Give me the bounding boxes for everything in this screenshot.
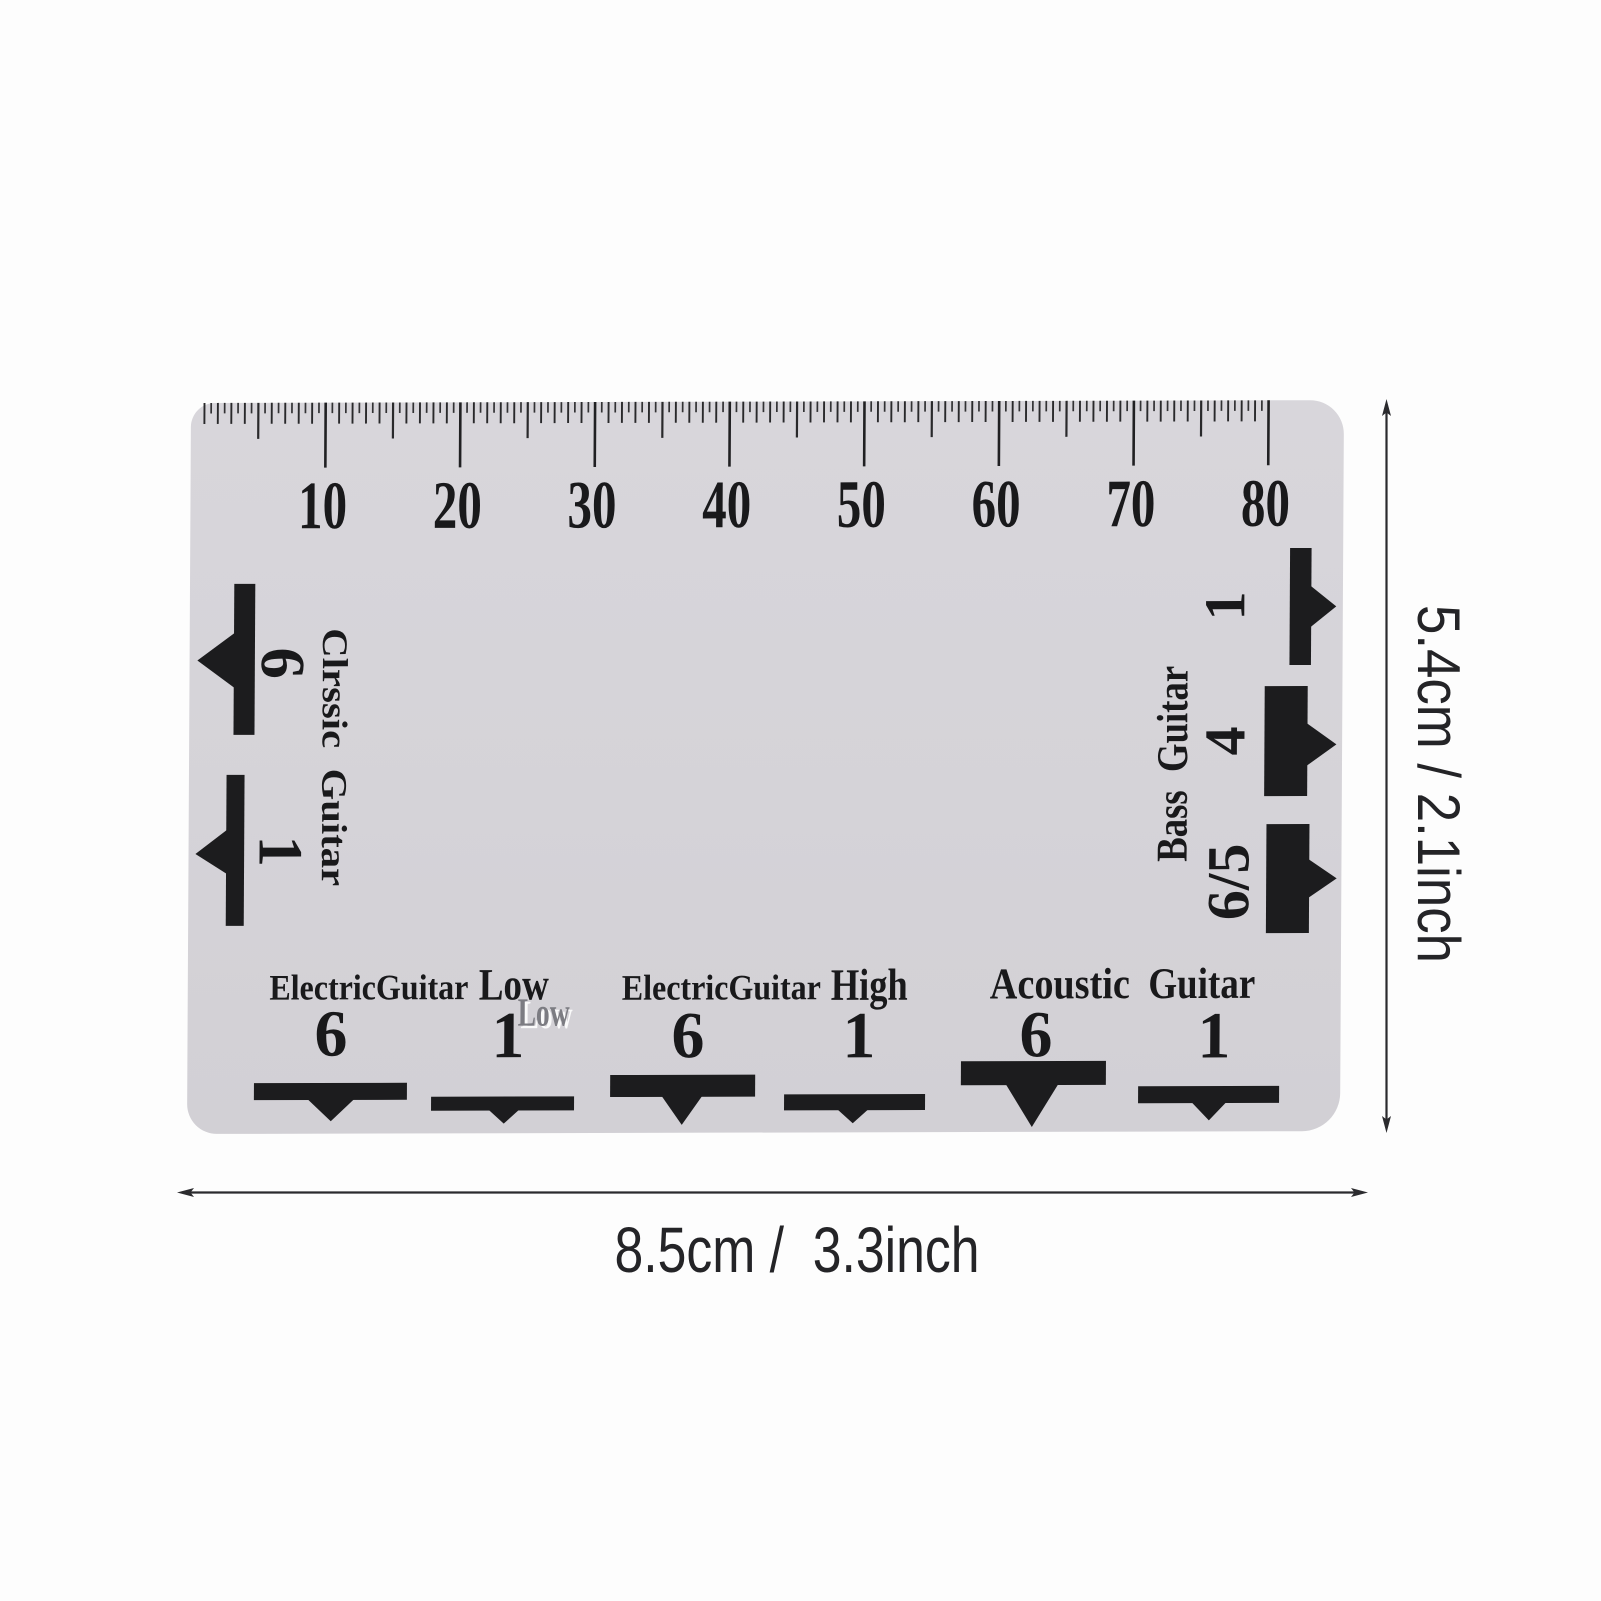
svg-text:70: 70 xyxy=(1106,465,1155,541)
svg-text:6: 6 xyxy=(1019,998,1052,1071)
svg-text:ElectricGuitar: ElectricGuitar xyxy=(622,967,821,1007)
svg-text:60: 60 xyxy=(971,465,1020,541)
svg-text:20: 20 xyxy=(433,467,482,543)
svg-text:1: 1 xyxy=(245,835,315,867)
svg-text:Bass Guitar: Bass Guitar xyxy=(1147,666,1197,862)
svg-text:1: 1 xyxy=(491,999,524,1072)
svg-text:1: 1 xyxy=(842,999,875,1072)
svg-text:6/5: 6/5 xyxy=(1195,843,1261,920)
svg-text:8.5cm / 3.3inch: 8.5cm / 3.3inch xyxy=(615,1214,980,1286)
svg-text:4: 4 xyxy=(1192,726,1257,755)
svg-text:50: 50 xyxy=(837,466,886,542)
svg-text:Low: Low xyxy=(518,990,570,1035)
svg-text:6: 6 xyxy=(248,647,318,679)
svg-text:80: 80 xyxy=(1241,465,1290,541)
svg-text:5.4cm / 2.1inch: 5.4cm / 2.1inch xyxy=(1405,605,1472,963)
svg-text:Acoustic: Acoustic xyxy=(990,959,1130,1008)
svg-text:1: 1 xyxy=(1197,999,1230,1072)
svg-text:6: 6 xyxy=(671,999,704,1072)
svg-text:40: 40 xyxy=(702,466,751,542)
svg-text:Clrssic Guitar: Clrssic Guitar xyxy=(314,628,355,886)
svg-text:1: 1 xyxy=(1192,591,1257,620)
svg-text:ElectricGuitar: ElectricGuitar xyxy=(269,967,468,1007)
svg-text:10: 10 xyxy=(298,467,347,543)
svg-text:30: 30 xyxy=(567,466,616,542)
svg-text:6: 6 xyxy=(314,998,347,1071)
